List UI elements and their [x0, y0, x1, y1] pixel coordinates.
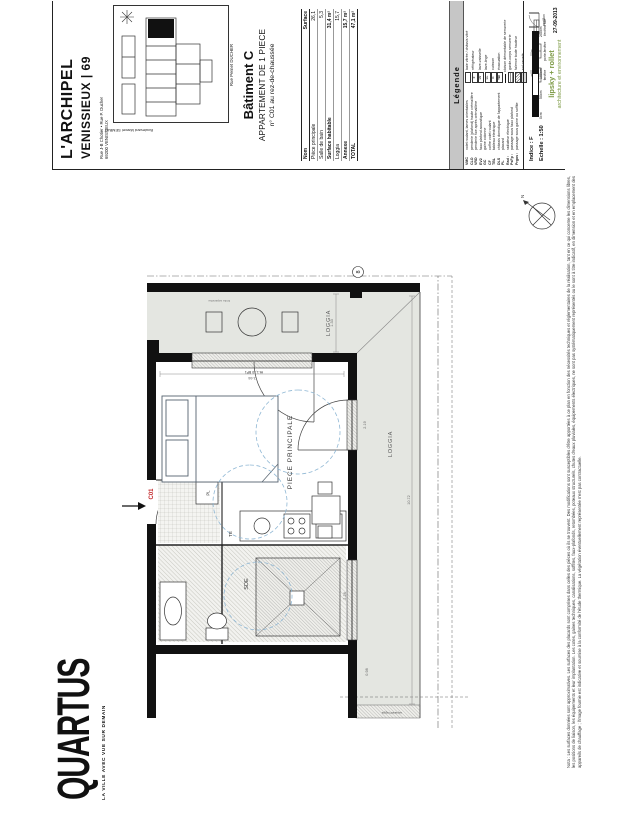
apartment-id-block: Bâtiment C APPARTEMENT DE 1 PIECE n° C01… [241, 1, 276, 169]
entry-closet: PL [196, 482, 218, 504]
table-row: Loggia15,7 [334, 9, 342, 161]
architect-block: lipsky + rollet architecture et environn… [547, 29, 563, 119]
date-label: 27-09-2013 [553, 7, 559, 33]
table-row-total: TOTAL47,1 m² [350, 9, 358, 161]
dishwasher-icon: LV [478, 72, 484, 83]
room-label-te: TE [228, 531, 233, 537]
titleblock-divider [523, 1, 524, 169]
dim-219: 2.19 [363, 421, 367, 428]
glazing-icon [465, 72, 471, 83]
site-plan-drawing [114, 6, 228, 122]
surface-table: Nom Surface Pièce principale26,1 Salle d… [301, 9, 358, 161]
dim-098: 0.98 [365, 668, 369, 675]
revision-index: Indice : F [529, 136, 535, 161]
legend-title: Légende [449, 1, 464, 169]
scale-label: Echelle : 1:50 [539, 125, 545, 161]
bed [162, 396, 278, 482]
legend-item: Prgos :passage sous gaine ou soffite [515, 87, 520, 165]
room-label-main: PIECE PRINCIPALE [287, 415, 294, 489]
architect-name: lipsky + rollet [547, 29, 556, 119]
closet-label: PL [206, 490, 211, 496]
apartment-type: APPARTEMENT DE 1 PIECE [258, 1, 267, 169]
nota-disclaimer: Nota : Les surfaces données sont approxi… [566, 176, 582, 768]
project-title: L'ARCHIPEL [59, 59, 77, 159]
fridge-icon: F [472, 72, 478, 83]
site-street-caption: Rue Pernet DUCHER [229, 7, 234, 123]
tiling-icon [515, 72, 521, 83]
gate-icon [527, 11, 541, 29]
building-name: Bâtiment C [241, 1, 256, 169]
cooking-icon: C [491, 72, 497, 83]
table-row: Salle de bain5,3 [318, 9, 326, 161]
svg-text:N: N [520, 195, 525, 198]
limite-label: limite séparative [208, 299, 230, 303]
entry-label: C01 [149, 488, 155, 500]
plan-sheet-viewport: QUARTUS LA VILLE AVEC VUE SUR DEMAIN [0, 0, 637, 824]
washer-icon: LL [485, 72, 491, 83]
separatif-label: séparatif loggia [381, 711, 402, 715]
window-label: Ht.1,10 BP1 [245, 370, 263, 374]
table-row: Surface habitable31,4 m² [326, 9, 334, 161]
gate-legend: portillon [527, 11, 546, 29]
entry: C01 [122, 488, 155, 510]
dim-366: 3.66 [248, 376, 255, 380]
architect-subtitle: architecture et environnement [557, 29, 563, 119]
dim-1072: 10.72 [407, 495, 411, 505]
architect-sheet: QUARTUS LA VILLE AVEC VUE SUR DEMAIN [0, 0, 637, 824]
table-header: Nom Surface [302, 9, 310, 161]
compass-icon [120, 10, 134, 24]
partition-icon [505, 74, 506, 83]
project-subtitle: VENISSIEUX | 69 [79, 56, 93, 159]
table-row: Pièce principale26,1 [310, 9, 318, 161]
site-plan-box [113, 5, 229, 123]
railing-icon [508, 72, 514, 83]
floor-icon [521, 72, 527, 83]
room-label-sde: SDE [244, 578, 250, 590]
toilet [206, 628, 228, 640]
highlighted-unit [148, 19, 174, 38]
apartment-number: n° C01 au rez-de-chaussée [269, 1, 276, 169]
room-label-loggia-2: LOGGIA [388, 431, 394, 457]
north-arrow-icon: N [520, 195, 555, 229]
site-boulevard-caption: Boulevard Marcel SEMBAT [105, 128, 153, 133]
scale-bar [532, 31, 539, 117]
dim-228: 2.28 [343, 592, 347, 599]
title-block: L'ARCHIPEL VENISSIEUX | 69 Rue J-B Choti… [52, 1, 565, 170]
svg-text:8: 8 [356, 270, 362, 273]
dim-133: 1.33 [330, 319, 334, 326]
table-row: Annexe15,7 m² [342, 9, 350, 161]
grid-marker: 8 [353, 267, 364, 278]
drain-icon: TBl [497, 72, 503, 83]
